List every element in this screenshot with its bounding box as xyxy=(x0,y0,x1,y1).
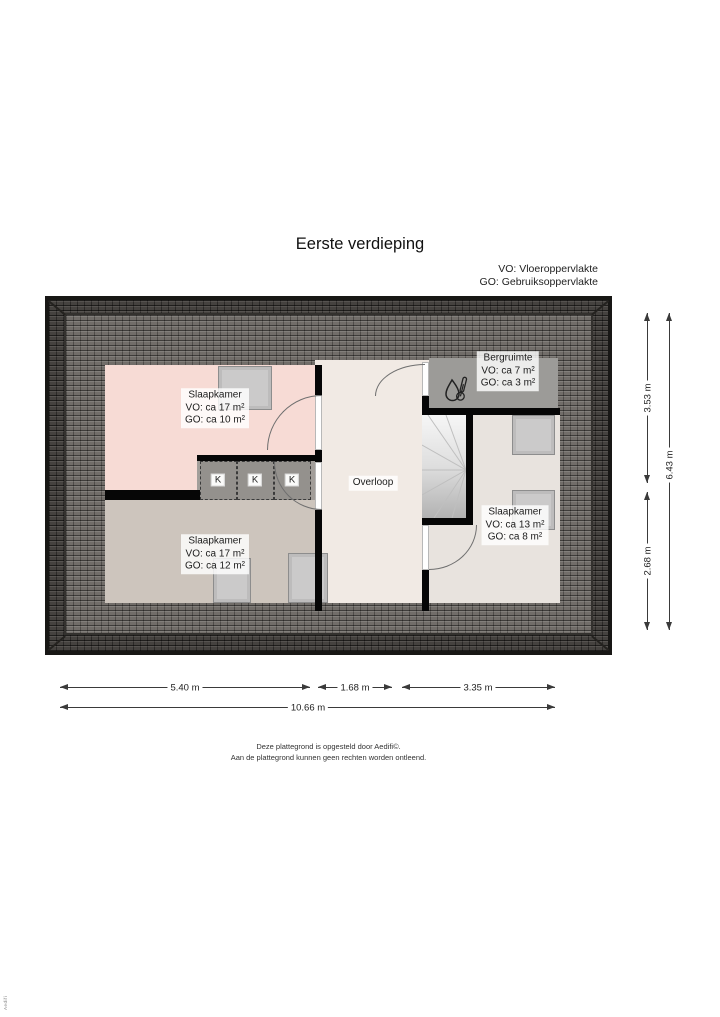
wall-closet-top xyxy=(197,455,322,461)
dim-label-right-total: 6.43 m xyxy=(665,447,676,482)
spiral-stairs-drawing xyxy=(422,415,466,518)
floorplan-page: Eerste verdieping VO: Vloeroppervlakte G… xyxy=(0,0,720,1017)
legend-vo: VO: Vloeroppervlakte xyxy=(480,263,598,276)
closet-label-1: K xyxy=(211,474,225,487)
wall-stair-bottom xyxy=(422,518,473,525)
room-vo: VO: ca 17 m² xyxy=(185,402,245,415)
room-go: GO: ca 8 m² xyxy=(486,531,545,544)
room-name: Slaapkamer xyxy=(185,535,245,548)
room-go: GO: ca 10 m² xyxy=(185,414,245,427)
wall-corridor-right-2 xyxy=(422,570,429,611)
room-name: Slaapkamer xyxy=(185,389,245,402)
room-vo: VO: ca 7 m² xyxy=(481,365,535,378)
dim-label-bottom-total: 10.66 m xyxy=(288,703,328,714)
closet-label-3: K xyxy=(285,474,299,487)
staircase xyxy=(422,415,466,518)
label-bergruimte: Bergruimte VO: ca 7 m² GO: ca 3 m² xyxy=(477,351,539,391)
roof-window-sw-2 xyxy=(288,553,328,603)
label-slaapkamer-e: Slaapkamer VO: ca 13 m² GO: ca 8 m² xyxy=(482,505,549,545)
room-go: GO: ca 12 m² xyxy=(185,560,245,573)
legend-go: GO: Gebruiksoppervlakte xyxy=(480,276,598,289)
room-name: Bergruimte xyxy=(481,352,535,365)
dim-label-right-upper: 3.53 m xyxy=(643,380,654,415)
legend: VO: Vloeroppervlakte GO: Gebruiksoppervl… xyxy=(480,263,598,289)
floorplan-drawing: K K K Slaapkamer VO: ca 17 m² GO: ca 10 … xyxy=(45,296,612,655)
page-title: Eerste verdieping xyxy=(0,235,720,254)
boiler-icon xyxy=(443,373,469,406)
edge-watermark: Aedifi xyxy=(3,996,8,1010)
wall-corridor-left-3 xyxy=(315,510,322,611)
door-frame-e xyxy=(422,525,429,570)
wall-stair-right xyxy=(466,415,473,525)
dim-label-bottom-right: 3.35 m xyxy=(460,683,495,694)
label-overloop: Overloop xyxy=(349,476,398,491)
roof-window-e-1 xyxy=(512,415,555,455)
closet-label-2: K xyxy=(248,474,262,487)
dim-label-right-lower: 2.68 m xyxy=(643,543,654,578)
dim-label-bottom-middle: 1.68 m xyxy=(337,683,372,694)
wall-nw-sw xyxy=(105,490,200,500)
wall-corridor-left-1 xyxy=(315,365,322,395)
wall-bergruimte-bottom xyxy=(422,408,560,415)
disclaimer-line-1: Deze plattegrond is opgesteld door Aedif… xyxy=(45,742,612,753)
disclaimer: Deze plattegrond is opgesteld door Aedif… xyxy=(45,742,612,763)
room-name: Overloop xyxy=(353,477,394,490)
room-name: Slaapkamer xyxy=(486,506,545,519)
wall-corridor-right-1 xyxy=(422,396,429,408)
label-slaapkamer-nw: Slaapkamer VO: ca 17 m² GO: ca 10 m² xyxy=(181,388,249,428)
room-vo: VO: ca 13 m² xyxy=(486,519,545,532)
label-slaapkamer-sw: Slaapkamer VO: ca 17 m² GO: ca 12 m² xyxy=(181,534,249,574)
disclaimer-line-2: Aan de plattegrond kunnen geen rechten w… xyxy=(45,753,612,764)
room-vo: VO: ca 17 m² xyxy=(185,548,245,561)
dim-label-bottom-left: 5.40 m xyxy=(167,683,202,694)
room-go: GO: ca 3 m² xyxy=(481,377,535,390)
